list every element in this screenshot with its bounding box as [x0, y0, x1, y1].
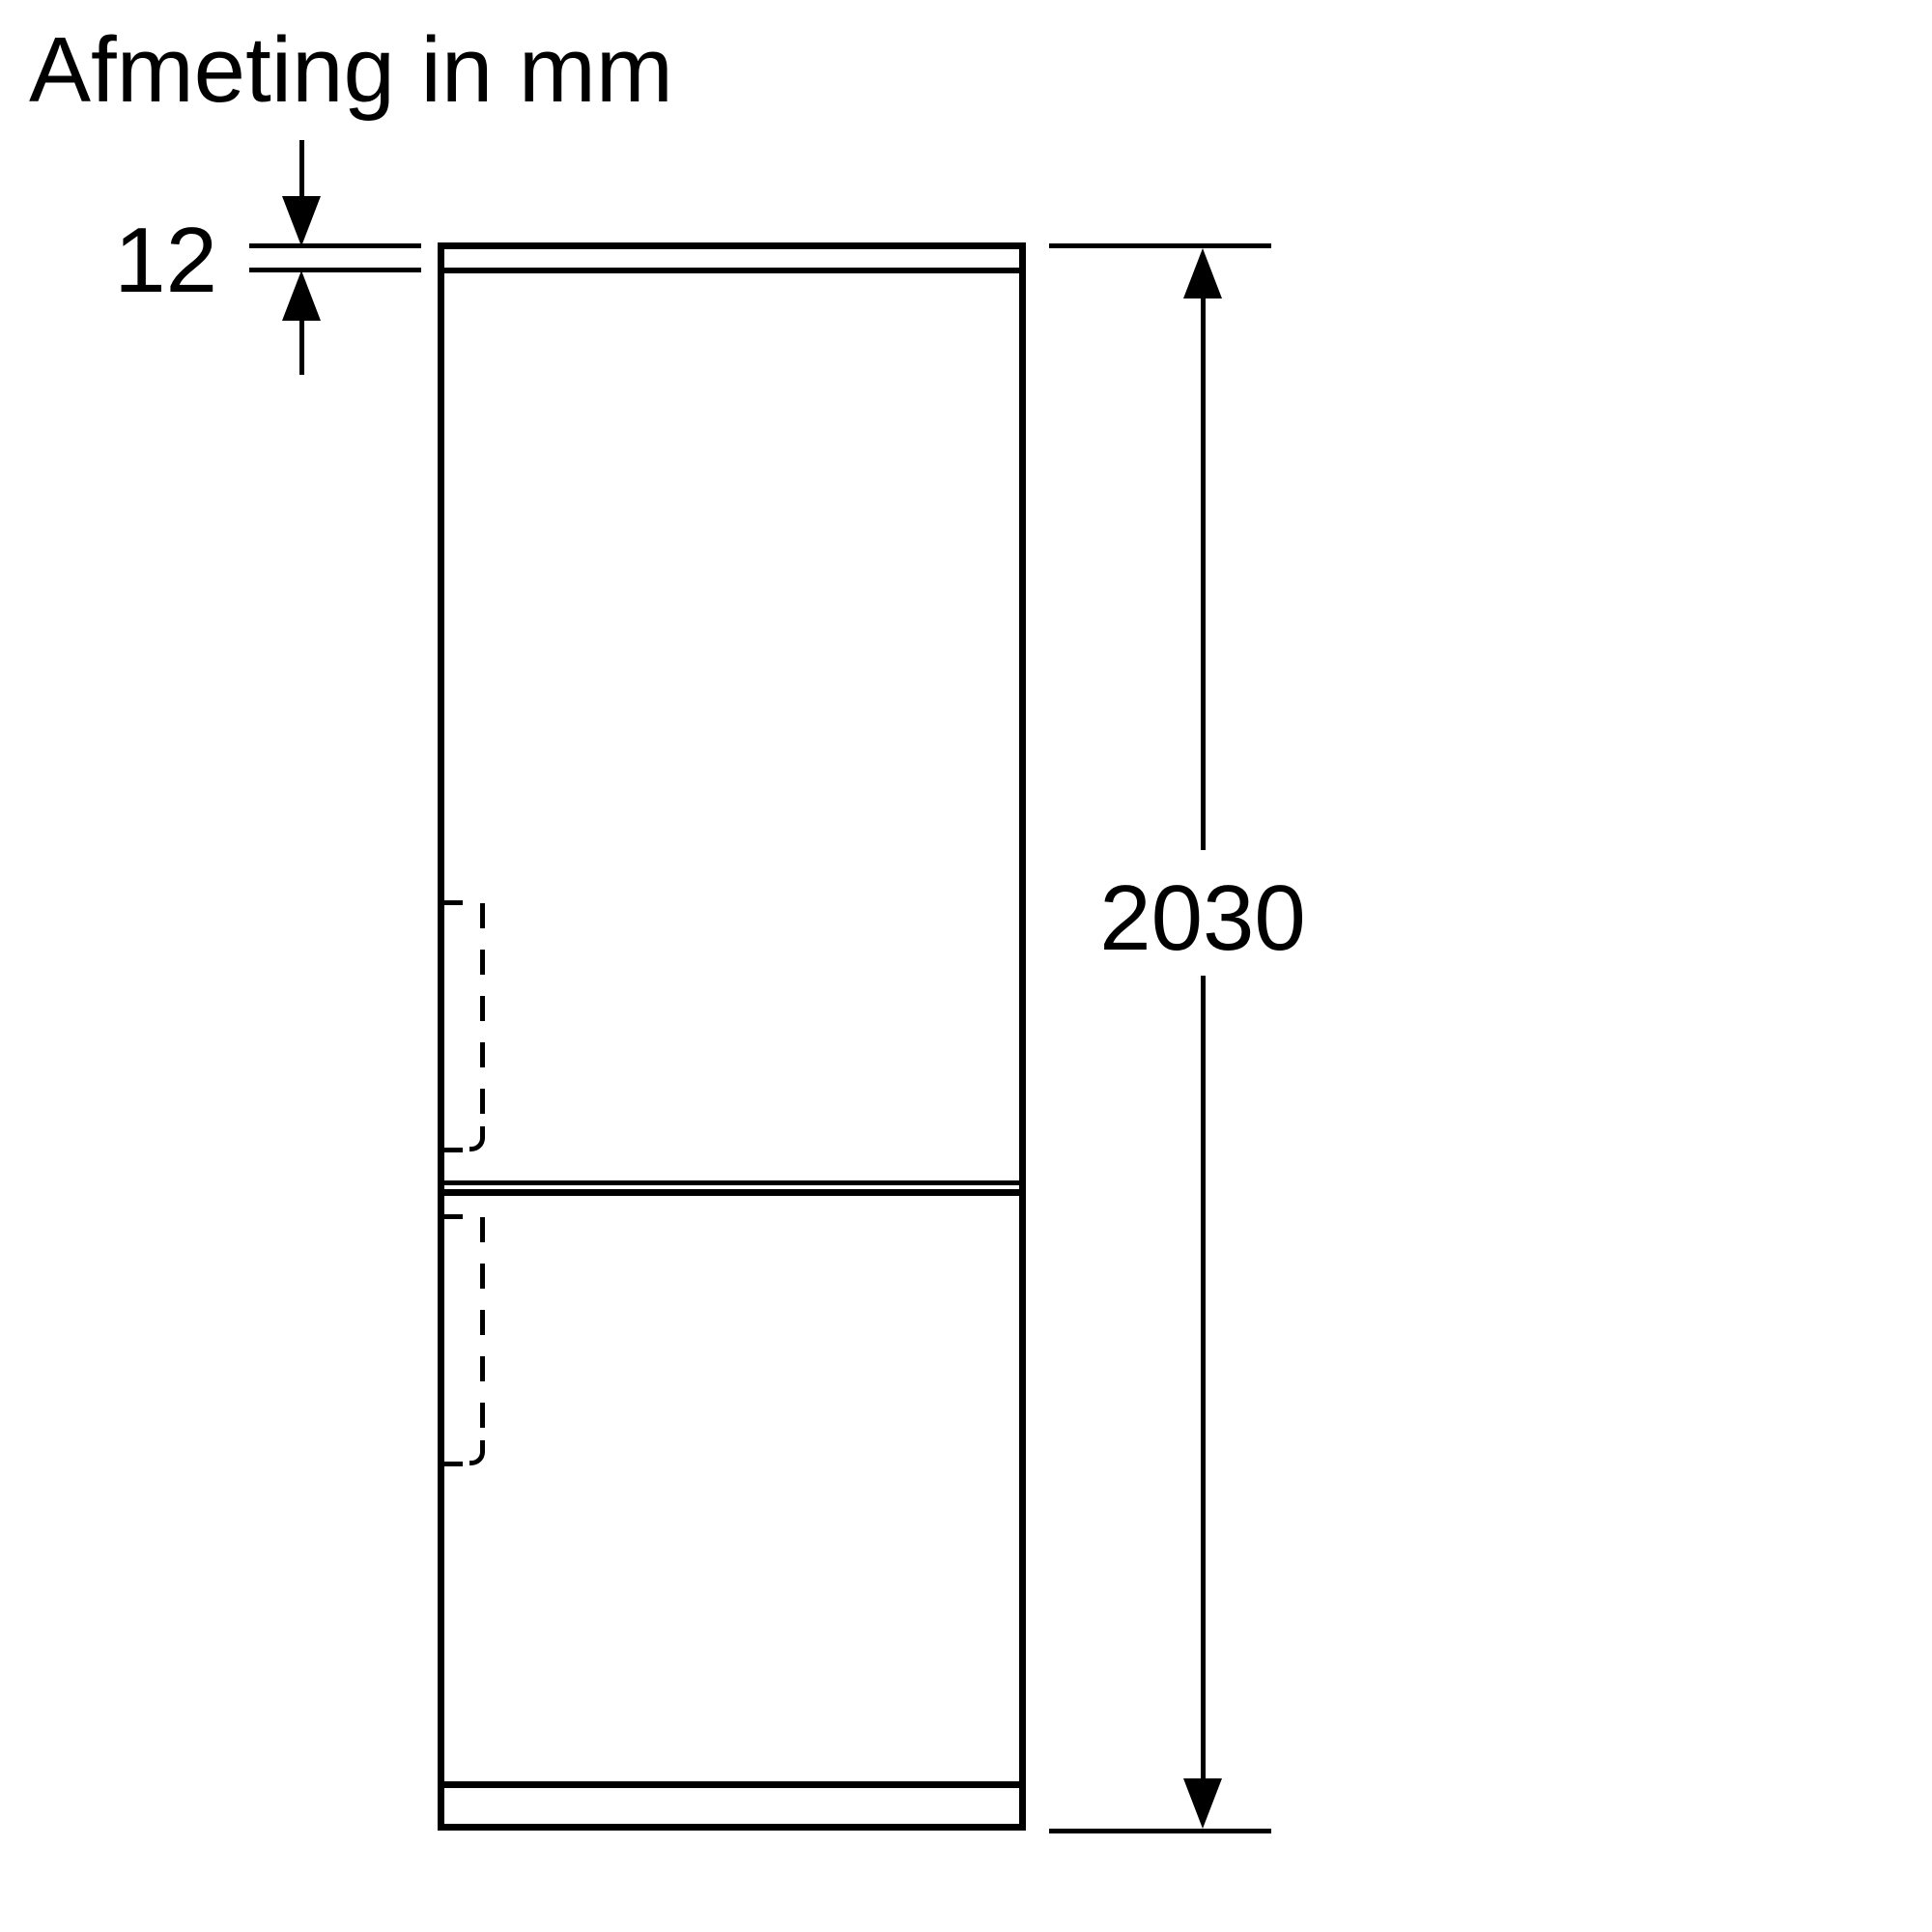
- arrow-12-down-tail: [299, 140, 304, 198]
- door-divider-line-top: [438, 1180, 1026, 1185]
- extension-line-2030-top: [1049, 243, 1271, 248]
- arrow-12-up-head-icon: [282, 270, 321, 321]
- fridge-outline: [438, 242, 1026, 1831]
- arrow-2030-down-head-icon: [1183, 1778, 1222, 1829]
- door-divider-line-bottom: [438, 1189, 1026, 1196]
- lower-door-dashed-axis: [480, 1217, 485, 1441]
- arrow-12-up-tail: [299, 321, 304, 375]
- diagram-title: Afmeting in mm: [29, 24, 673, 117]
- lower-door-hinge-tick-top: [438, 1214, 463, 1219]
- dimension-label-12: 12: [87, 214, 217, 307]
- extension-line-12-bottom: [249, 268, 421, 272]
- upper-door-hinge-tick-top: [438, 900, 463, 905]
- dimension-label-2030: 2030: [1082, 872, 1323, 965]
- arrow-12-down-head-icon: [282, 196, 321, 246]
- extension-line-2030-bottom: [1049, 1829, 1271, 1833]
- lower-door-hinge-tick-bottom: [438, 1462, 463, 1466]
- dimension-diagram: Afmeting in mm 12 2030: [0, 0, 1932, 1932]
- fridge-top-panel-line: [438, 268, 1026, 273]
- upper-door-hinge-tick-bottom: [438, 1148, 463, 1152]
- extension-line-12-top: [249, 243, 421, 248]
- fridge-plinth-line: [438, 1781, 1026, 1788]
- upper-door-dashed-axis: [480, 903, 485, 1127]
- dimension-line-2030-lower: [1201, 976, 1206, 1778]
- dimension-line-2030-upper: [1201, 295, 1206, 850]
- arrow-2030-up-head-icon: [1183, 248, 1222, 298]
